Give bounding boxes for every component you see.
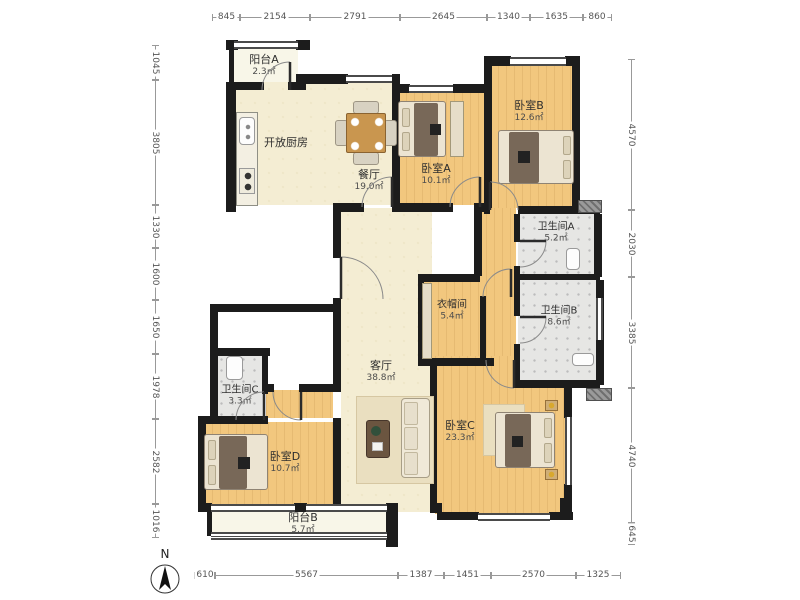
plant	[371, 426, 381, 436]
dimension-right: 3385	[631, 277, 632, 388]
room-name: 卫生间B	[541, 305, 578, 318]
dimension-left: 2582	[155, 419, 156, 504]
dimension-value: 1016	[150, 507, 160, 534]
wall-segment	[229, 50, 234, 82]
dimension-right: 4740	[631, 388, 632, 523]
dimension-bottom: 2570	[491, 575, 576, 576]
dimension-value: 2791	[342, 12, 369, 22]
room-label-bath-b: 卫生间B 8.6㎡	[541, 305, 578, 330]
dimension-left: 1045	[155, 46, 156, 80]
bed-a	[398, 101, 446, 157]
wall-segment	[418, 274, 480, 282]
ac-platform	[586, 388, 612, 401]
floor-plan: 阳台A 2.3㎡ 开放厨房 餐厅 19.0㎡ 卧室A 10.1㎡ 卧室B 12.…	[0, 0, 800, 600]
room-name: 衣帽间	[437, 299, 467, 312]
room-label-bedroom-d: 卧室D 10.7㎡	[270, 450, 300, 476]
wall-segment	[296, 74, 348, 84]
room-label-balcony-b: 阳台B 5.7㎡	[288, 511, 318, 537]
dimension-left: 1016	[155, 504, 156, 537]
room-label-bath-a: 卫生间A 5.2㎡	[538, 221, 575, 246]
room-name: 卫生间A	[538, 221, 575, 234]
dimension-value: 1650	[150, 314, 160, 341]
dimension-right: 645	[631, 523, 632, 544]
kitchen-sink	[239, 117, 255, 145]
wall-segment	[474, 203, 482, 276]
dimension-value: 860	[586, 12, 607, 22]
dimension-value: 1325	[585, 570, 612, 580]
dimension-left: 1330	[155, 205, 156, 248]
room-area: 12.6㎡	[514, 113, 543, 125]
decor-tray	[238, 457, 250, 469]
room-label-living: 客厅 38.8㎡	[366, 359, 395, 385]
dimension-right: 2030	[631, 210, 632, 277]
pillow	[563, 136, 571, 155]
dimension-value: 2154	[262, 12, 289, 22]
tray	[372, 442, 383, 451]
dimension-value: 1330	[150, 213, 160, 240]
dimension-value: 4570	[626, 122, 636, 149]
dining-table	[346, 113, 386, 153]
room-label-bedroom-c: 卧室C 23.3㎡	[445, 419, 475, 445]
dimension-value: 5567	[293, 570, 320, 580]
dimension-value: 2570	[520, 570, 547, 580]
room-name: 卫生间C	[222, 384, 259, 397]
room-label-dining: 餐厅 19.0㎡	[354, 168, 383, 194]
dimension-value: 3805	[150, 129, 160, 156]
room-name: 阳台B	[288, 511, 318, 525]
room-area: 3.3㎡	[228, 397, 251, 409]
dimension-value: 4740	[626, 442, 636, 469]
wall-segment	[333, 312, 341, 386]
pillow	[544, 418, 552, 438]
wardrobe-a	[450, 101, 464, 157]
dimension-value: 1387	[408, 570, 435, 580]
wall-segment	[226, 82, 236, 212]
kitchen-stove	[239, 168, 255, 194]
room-name: 客厅	[370, 359, 392, 373]
bathtub	[572, 353, 594, 366]
room-name: 卧室D	[270, 450, 300, 464]
dimension-value: 1600	[150, 261, 160, 288]
wall-segment	[210, 304, 218, 354]
wall-segment	[333, 418, 341, 512]
wall-segment	[437, 512, 479, 520]
wall-segment	[386, 503, 398, 547]
dining-chair	[353, 152, 379, 165]
room-name: 阳台A	[249, 53, 279, 67]
window	[565, 417, 572, 485]
wall-segment	[198, 503, 212, 512]
room-area: 5.2㎡	[544, 234, 567, 246]
pillow	[208, 440, 216, 460]
wall-segment	[396, 84, 410, 93]
dimension-bottom: 5567	[215, 575, 398, 576]
dimension-value: 2582	[150, 448, 160, 475]
wall-segment	[333, 203, 341, 258]
dimension-left: 1600	[155, 248, 156, 300]
window	[234, 41, 298, 49]
pillow	[563, 160, 571, 179]
room-label-kitchen: 开放厨房	[264, 136, 308, 150]
room-bath-b-floor	[518, 278, 598, 382]
dimension-value: 2645	[430, 12, 457, 22]
bed-b	[498, 130, 574, 184]
room-area: 8.6㎡	[547, 318, 570, 330]
compass-needle-icon	[159, 566, 171, 590]
nightstand	[545, 400, 558, 411]
dimension-left: 3805	[155, 80, 156, 205]
bedroom-d-vestibule-floor	[266, 390, 333, 418]
pillow	[544, 443, 552, 463]
dimension-top: 845	[213, 17, 240, 18]
dimension-value: 1451	[454, 570, 481, 580]
window	[596, 298, 603, 340]
room-area: 23.3㎡	[445, 433, 474, 445]
room-label-cloakroom: 衣帽间 5.4㎡	[437, 299, 467, 324]
wall-segment	[594, 214, 602, 277]
dimension-value: 610	[194, 570, 215, 580]
dimension-left: 1650	[155, 300, 156, 354]
dimension-value: 3385	[626, 319, 636, 346]
wall-segment	[514, 214, 520, 242]
toilet	[226, 356, 243, 380]
pillow	[402, 108, 410, 127]
dimension-bottom: 610	[195, 575, 215, 576]
dimension-top: 2645	[400, 17, 487, 18]
window	[346, 75, 392, 83]
cloakroom-rack	[422, 283, 432, 359]
wall-segment	[480, 296, 486, 366]
room-name: 卧室A	[421, 162, 451, 176]
compass-label: N	[161, 547, 170, 561]
dimension-left: 1978	[155, 354, 156, 419]
sofa-cushion	[404, 427, 418, 450]
room-area: 10.1㎡	[421, 176, 450, 188]
sofa-cushion	[404, 452, 418, 475]
dimension-value: 1340	[495, 12, 522, 22]
decor-tray	[518, 151, 530, 163]
room-area: 2.3㎡	[252, 67, 275, 79]
dimension-right: 4570	[631, 60, 632, 210]
nightstand	[545, 469, 558, 480]
wall-segment	[296, 40, 310, 50]
toilet	[566, 248, 580, 270]
room-label-balcony-a: 阳台A 2.3㎡	[249, 53, 279, 79]
dimension-value: 2030	[626, 230, 636, 257]
wall-segment	[210, 304, 341, 312]
wall-segment	[484, 56, 492, 208]
dimension-bottom: 1387	[398, 575, 444, 576]
window	[510, 57, 566, 66]
bed-d	[204, 434, 268, 490]
room-name: 卧室C	[445, 419, 475, 433]
ac-platform	[578, 200, 602, 213]
wall-segment	[392, 203, 453, 212]
dimension-top: 2154	[240, 17, 310, 18]
wall-segment	[514, 282, 520, 316]
room-label-bath-c: 卫生间C 3.3㎡	[222, 384, 259, 409]
wall-segment	[210, 348, 218, 424]
room-name: 餐厅	[358, 168, 380, 182]
dimension-bottom: 1325	[576, 575, 620, 576]
wall-segment	[268, 384, 274, 392]
wall-segment	[514, 266, 520, 282]
decor-tray	[430, 124, 441, 135]
dimension-value: 845	[216, 12, 237, 22]
pillow	[208, 465, 216, 485]
room-area: 38.8㎡	[366, 373, 395, 385]
wall-segment	[514, 344, 520, 388]
room-label-bedroom-b: 卧室B 12.6㎡	[514, 99, 544, 125]
compass: N	[151, 547, 179, 593]
room-label-bedroom-a: 卧室A 10.1㎡	[421, 162, 451, 188]
sofa	[401, 398, 430, 478]
wall-segment	[516, 274, 600, 280]
wall-segment	[560, 498, 572, 520]
window	[409, 85, 453, 93]
dimension-value: 645	[626, 523, 636, 544]
dimension-top: 1340	[487, 17, 530, 18]
compass-circle	[151, 565, 179, 593]
wall-segment	[516, 380, 600, 388]
wall-segment	[202, 416, 268, 424]
window	[211, 504, 295, 512]
room-name: 卧室B	[514, 99, 544, 113]
window	[478, 513, 550, 521]
dimension-top: 2791	[310, 17, 400, 18]
sofa-cushion	[404, 402, 418, 425]
room-name: 开放厨房	[264, 136, 308, 150]
bed-c	[495, 412, 555, 468]
dimension-bottom: 1451	[444, 575, 491, 576]
room-area: 5.7㎡	[291, 525, 314, 537]
wall-segment	[564, 388, 572, 418]
dimension-value: 1635	[543, 12, 570, 22]
dimension-value: 1978	[150, 373, 160, 400]
wall-segment	[210, 348, 270, 356]
decor-tray	[512, 436, 523, 447]
room-area: 5.4㎡	[440, 312, 463, 324]
dimension-top: 1635	[530, 17, 583, 18]
dimension-top: 860	[583, 17, 611, 18]
pillow	[402, 132, 410, 151]
room-area: 19.0㎡	[354, 182, 383, 194]
room-area: 10.7㎡	[270, 464, 299, 476]
dimension-value: 1045	[150, 50, 160, 77]
